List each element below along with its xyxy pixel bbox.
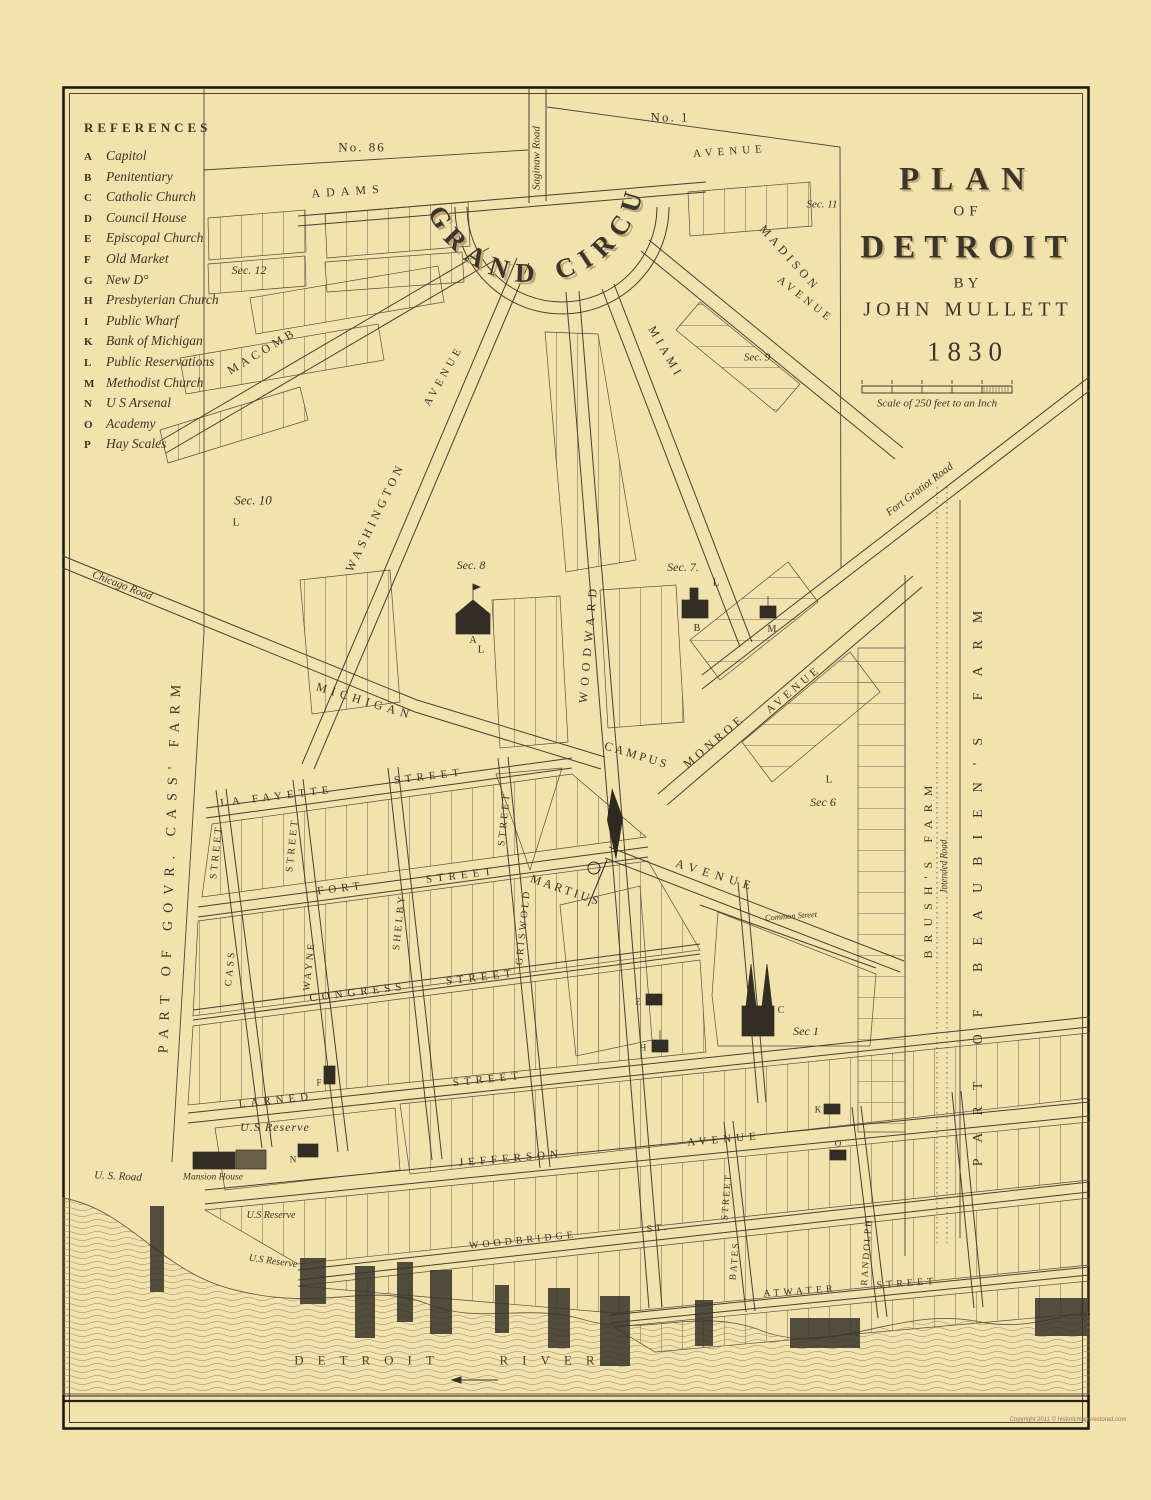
market-mark: F — [316, 1079, 321, 1088]
section-9-label: Sec. 9 — [744, 353, 770, 364]
reference-item: CCatholic Church — [84, 189, 304, 205]
brush-farm-label: BRUSH'S FARM — [922, 778, 934, 959]
reference-item: ACapitol — [84, 148, 304, 164]
title-author: JOHN MULLETT — [863, 299, 1072, 322]
title-detroit: DETROIT — [860, 230, 1075, 267]
reservation-mark: L — [826, 775, 833, 786]
us-reserve-label-1: U.S Reserve — [240, 1121, 310, 1133]
title-year: 1830 — [927, 337, 1009, 368]
detroit-river-label-1: DETROIT — [294, 1354, 448, 1367]
methodist-mark: M — [768, 625, 777, 635]
episcopal-mark: E — [635, 998, 641, 1007]
reservation-mark: L — [713, 578, 720, 589]
plat-no-1: No. 1 — [651, 111, 690, 124]
academy-mark: O — [835, 1140, 842, 1149]
section-11-label: Sec. 11 — [807, 200, 838, 211]
section-7-label: Sec. 7. — [667, 561, 699, 573]
bank-building — [824, 1104, 840, 1114]
reference-item: NU S Arsenal — [84, 395, 304, 411]
reservation-mark: L — [478, 645, 485, 656]
bank-mark: K — [815, 1106, 822, 1115]
reference-item: BPenitentiary — [84, 169, 304, 185]
capitol-mark: A — [469, 636, 476, 646]
detroit-river-label-2: RIVER — [500, 1354, 609, 1367]
arsenal-building — [298, 1144, 318, 1157]
us-reserve-label-2: U.S Reserve — [247, 1211, 296, 1221]
presbyterian-mark: H — [640, 1044, 647, 1053]
map-poster: GRAND CIRCUS GRAND CIRCUS REFERENCES ACa… — [0, 0, 1151, 1500]
reference-item: EEpiscopal Church — [84, 230, 304, 246]
mansion-house-building — [193, 1150, 266, 1169]
title-by: BY — [954, 276, 983, 293]
copyright-line: Copyright 2011 © historicmapsrestored.co… — [1010, 1417, 1127, 1423]
intended-road-label: Intended Road — [940, 840, 949, 893]
reference-item: DCouncil House — [84, 210, 304, 226]
academy-building — [830, 1150, 846, 1160]
scale-bar — [862, 380, 1012, 393]
reference-item: LPublic Reservations — [84, 354, 304, 370]
capitol-building — [456, 584, 490, 634]
section-1-label: Sec 1 — [793, 1025, 819, 1037]
reference-item: HPresbyterian Church — [84, 292, 304, 308]
plat-no-86: No. 86 — [338, 141, 385, 154]
reference-item: PHay Scales — [84, 436, 304, 452]
references-legend: REFERENCES ACapitol BPenitentiary CCatho… — [84, 120, 304, 457]
title-plan: PLAN — [899, 162, 1037, 199]
beaubien-farm-label: PART OF BEAUBIEN'S FARM — [972, 594, 986, 1167]
episcopal-church-building — [646, 994, 662, 1005]
reference-item: OAcademy — [84, 416, 304, 432]
arsenal-mark: N — [290, 1156, 297, 1165]
old-market-building — [324, 1066, 335, 1084]
section-10-label: Sec. 10 — [234, 494, 272, 507]
reference-item: GNew D° — [84, 272, 304, 288]
reference-item: IPublic Wharf — [84, 313, 304, 329]
title-of: OF — [953, 204, 982, 221]
saginaw-road-label: Saginaw Road — [532, 126, 543, 190]
penitentiary-mark: B — [694, 624, 701, 634]
penitentiary-building — [682, 588, 708, 618]
scale-label: Scale of 250 feet to an Inch — [877, 399, 997, 410]
catholic-mark: C — [778, 1006, 785, 1016]
section-8-label: Sec. 8 — [457, 559, 486, 571]
references-heading: REFERENCES — [84, 120, 304, 136]
section-12-label: Sec. 12 — [232, 264, 267, 276]
reservation-mark: L — [233, 518, 240, 529]
mansion-house-label: Mansion House — [183, 1173, 243, 1183]
reference-item: MMethodist Church — [84, 375, 304, 391]
section-6-label: Sec 6 — [810, 796, 836, 808]
reference-item: FOld Market — [84, 251, 304, 267]
